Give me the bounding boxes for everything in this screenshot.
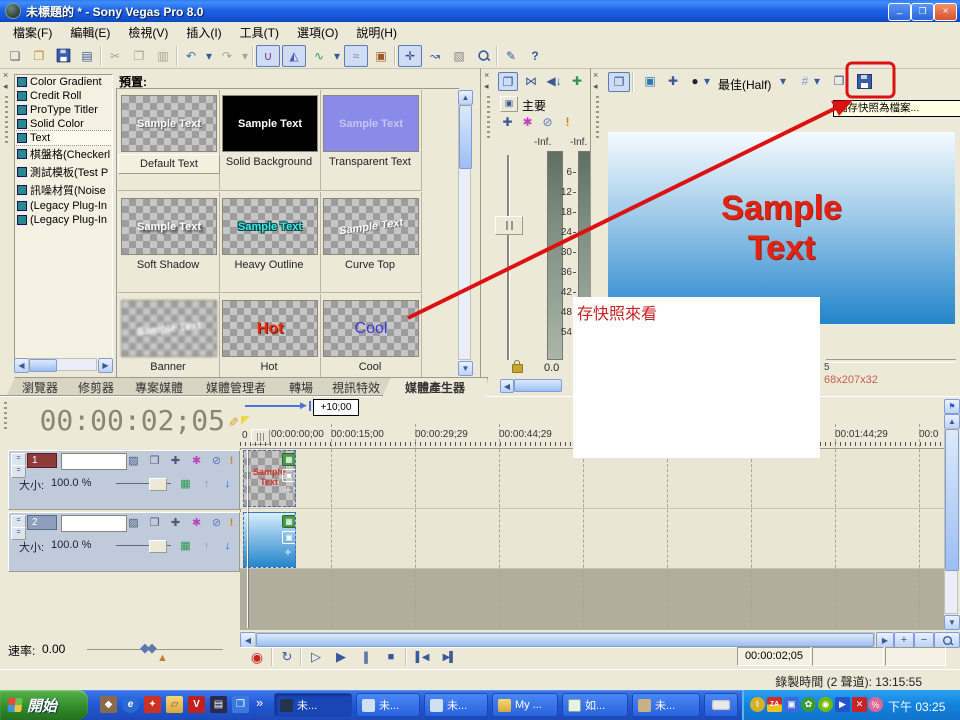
presets-grid: Sample Text Default Text Sample Text Sol… [116, 88, 460, 378]
play-button[interactable]: ▶ [330, 648, 352, 666]
marker-flag-icon[interactable]: ⚑ [944, 399, 960, 414]
preset-transparent-text[interactable]: Sample Text Transparent Text [320, 90, 422, 191]
preview-status-divider [826, 359, 956, 363]
grid-dropdown-icon[interactable]: ▾ [812, 72, 822, 90]
zoom-tool-button[interactable] [934, 632, 960, 648]
meter-scale-24: 24 [560, 227, 576, 238]
zoom-out-icon[interactable]: − [914, 632, 934, 648]
event-fx-icon[interactable]: ✛ [282, 485, 294, 496]
track2-lane[interactable] [240, 512, 944, 569]
generator-list: Color Gradient Credit Roll ProType Title… [14, 74, 113, 360]
pause-button[interactable]: ∥ [355, 648, 377, 666]
snap-toggle-icon[interactable]: ∪ [256, 45, 280, 67]
project-properties-icon[interactable]: ❐ [608, 72, 630, 92]
task-icon [280, 699, 293, 712]
preset-curve-top[interactable]: Sample Text Curve Top [320, 192, 422, 293]
track1-automation-icon[interactable]: ▦ [177, 476, 194, 491]
preset-banner[interactable]: Sample Text Banner [118, 294, 220, 378]
zoom-in-icon[interactable]: + [894, 632, 914, 648]
generator-item[interactable]: Credit Roll [15, 89, 112, 103]
generator-label: Color Gradient [30, 76, 102, 88]
mixer-hscrollbar[interactable] [514, 379, 562, 392]
generator-item[interactable]: 測試模板(Test P [15, 163, 112, 181]
restore-button[interactable]: ❐ [911, 3, 934, 21]
event-fx-icon[interactable]: ✛ [282, 547, 294, 558]
ruler-label-4: 00:01:44;29 [835, 429, 888, 440]
tab-media-manager[interactable]: 媒體管理者 [188, 377, 284, 397]
ruler-zero-label: 0 [242, 430, 248, 441]
preset-solid-background[interactable]: Sample Text Solid Background [219, 90, 321, 191]
presets-scroll-down-icon[interactable]: ▼ [458, 361, 473, 376]
master-gain-value: 0.0 [544, 362, 559, 374]
menu-tools[interactable]: 工具(T) [231, 22, 288, 43]
go-to-end-button[interactable]: ▶▌ [437, 648, 461, 666]
record-button[interactable]: ◉ [246, 648, 268, 666]
timeline-scroll-down-icon[interactable]: ▼ [944, 615, 960, 630]
preset-heavy-outline[interactable]: Sample Text Heavy Outline [219, 192, 321, 293]
generator-bullet-icon [17, 185, 27, 195]
preset-thumbnail: Sample Text [222, 198, 318, 255]
track2-automation-icon[interactable]: ▦ [177, 538, 194, 553]
quick-launch-icon-7[interactable]: ❐ [232, 696, 249, 713]
master-solo-icon[interactable]: ! [559, 114, 576, 130]
ignore-grouping-icon[interactable]: ▣ [370, 46, 392, 66]
mixer-panel-border [480, 68, 481, 398]
generator-label: 訊噪材質(Noise [30, 182, 106, 198]
generated-media-icon[interactable]: ▦ [282, 515, 296, 528]
generator-label: Credit Roll [30, 90, 81, 102]
tray-icon-2[interactable]: ZA [767, 697, 782, 712]
title-bar: 未標題的 * - Sony Vegas Pro 8.0 _ ❐ × [0, 0, 960, 22]
start-label: 開始 [27, 695, 57, 716]
preset-name: Transparent Text [320, 156, 420, 168]
master-fx-icon[interactable]: ✱ [519, 114, 536, 130]
gridline [499, 424, 500, 628]
offset-arrow-line [245, 405, 303, 407]
copy-icon[interactable]: ❐ [128, 46, 150, 66]
master-bus-icon[interactable]: ▣ [500, 96, 518, 112]
copy-snapshot-icon[interactable]: ❐ [830, 72, 848, 90]
video-fx-icon[interactable]: ✚ [664, 72, 682, 90]
genpanel-collapse-icon[interactable]: ◂ [3, 82, 8, 91]
preset-name: Banner [118, 361, 218, 373]
preset-hot[interactable]: Hot Hot [219, 294, 321, 378]
track2-clip[interactable]: ▦ ▣ ✛ [243, 512, 296, 568]
genpanel-close-icon[interactable]: × [3, 71, 8, 80]
transport-separator [300, 648, 302, 666]
window-title: 未標題的 * - Sony Vegas Pro 8.0 [26, 3, 203, 20]
pan-crop-icon[interactable]: ▣ [282, 531, 296, 544]
track1-bypass-motion-blur-icon[interactable]: ▨ [125, 453, 142, 468]
tray-icon-6[interactable]: ▶ [835, 697, 850, 712]
preset-name: Heavy Outline [219, 259, 319, 271]
minimize-button[interactable]: _ [888, 3, 911, 21]
mixer-drag-handle[interactable] [487, 96, 490, 141]
undo-icon[interactable]: ↶ [180, 46, 202, 66]
video-preview-frame: Sample Text [608, 132, 955, 324]
track2-track-motion-icon[interactable]: ❐ [146, 515, 163, 530]
annotation-note-text: 存快照來看 [577, 300, 657, 324]
preset-name: Curve Top [320, 259, 420, 271]
save-snapshot-button[interactable] [854, 72, 874, 90]
taskbar-task-4[interactable]: My ... [492, 693, 558, 717]
redo-dropdown-icon[interactable]: ▾ [240, 46, 250, 66]
generator-label: (Legacy Plug-In [30, 200, 107, 212]
preset-thumbnail: Sample Text [121, 300, 217, 357]
keyboard-icon [712, 700, 730, 710]
quick-launch-icon-5[interactable]: V [188, 696, 205, 713]
ruler-label-2: 00:00:29;29 [415, 429, 468, 440]
edit-pencil-icon[interactable]: ✎ [224, 417, 240, 428]
cut-icon[interactable]: ✂ [104, 46, 126, 66]
overlays-dropdown-icon[interactable]: ▾ [702, 72, 712, 90]
ruler-label-5: 00:0 [919, 429, 938, 440]
track1-header[interactable]: = = 1 ▨ ❐ ✚ ✱ ⊘ ! 大小: 100.0 % ▦ ↑ ↓ [8, 450, 240, 510]
tab-project-media[interactable]: 專案媒體 [118, 377, 200, 397]
paste-icon[interactable]: ▥ [152, 46, 174, 66]
whats-this-icon[interactable]: ? [524, 46, 546, 66]
generator-bullet-icon [17, 133, 27, 143]
taskbar-keyboard-button[interactable] [704, 693, 738, 717]
gridline [835, 424, 836, 628]
transport-separator [405, 648, 407, 666]
generator-item[interactable]: (Legacy Plug-In [15, 199, 112, 213]
mixer-plugin-icon[interactable]: ✚ [568, 72, 586, 89]
quick-launch-icon-3[interactable]: ✦ [144, 696, 161, 713]
preview-status-frame: 5 [824, 362, 830, 373]
menu-edit[interactable]: 編輯(E) [61, 22, 119, 43]
track2-bypass-motion-blur-icon[interactable]: ▨ [125, 515, 142, 530]
preview-collapse-icon[interactable]: ◂ [593, 82, 598, 91]
pan-crop-icon[interactable]: ▣ [282, 469, 296, 482]
track1-composite-mode-icon[interactable]: ✚ [167, 453, 184, 468]
generator-bullet-icon [17, 149, 27, 159]
track2-size-value: 100.0 % [51, 539, 91, 551]
mixer-downmix-icon[interactable]: ⋈ [522, 72, 540, 89]
tray-icon-8[interactable]: % [868, 697, 883, 712]
mixer-dim-output-icon[interactable]: ◀↓ [545, 72, 563, 89]
task-icon [430, 699, 443, 712]
fader-track [507, 155, 510, 360]
quick-launch-icon-1[interactable]: ◆ [100, 696, 117, 713]
generator-item[interactable]: Solid Color [15, 117, 112, 131]
track2-track-fx-icon[interactable]: ✱ [188, 515, 205, 530]
lock-envelopes-icon[interactable]: ≈ [344, 45, 368, 67]
track2-name-input[interactable] [61, 515, 127, 532]
track2-arm-down-icon[interactable]: ↓ [219, 538, 236, 553]
preset-name: Default Text [118, 154, 220, 174]
preset-thumbnail: Cool [323, 300, 419, 357]
meter-scale-30: 30 [560, 247, 576, 258]
normal-edit-tool-icon[interactable]: ✛ [398, 45, 422, 67]
generator-label: (Legacy Plug-In [30, 214, 107, 226]
generator-label: 測試模板(Test P [30, 164, 108, 180]
track2-arm-up-icon[interactable]: ↑ [198, 538, 215, 553]
mixer-collapse-icon[interactable]: ◂ [484, 82, 489, 91]
auto-ripple-icon[interactable]: ◭ [282, 45, 306, 67]
ruler-label-3: 00:00:44;29 [499, 429, 552, 440]
menu-insert[interactable]: 插入(I) [177, 22, 230, 43]
timeline-hscrollbar[interactable] [255, 632, 875, 646]
track2-header[interactable]: = = 2 ▨ ❐ ✚ ✱ ⊘ ! 大小: 100.0 % ▦ ↑ ↓ [8, 512, 240, 572]
timeline-drag-handle[interactable] [4, 402, 7, 432]
stop-button[interactable]: ■ [380, 648, 402, 666]
track1-lane[interactable] [240, 450, 944, 509]
generator-bullet-icon [17, 105, 27, 115]
meter-scale-12: 12 [560, 187, 576, 198]
track2-size-label: 大小: [19, 539, 44, 555]
generator-item[interactable]: (Legacy Plug-In [15, 213, 112, 227]
presets-scroll-up-icon[interactable]: ▲ [458, 90, 473, 105]
app-icon [5, 3, 21, 19]
track1-solo-icon[interactable]: ! [223, 453, 240, 468]
meter1-top-label: -Inf. [534, 137, 551, 148]
transport-field-2[interactable] [812, 647, 884, 666]
preview-toolbar-separator [632, 72, 634, 92]
track2-number-badge[interactable]: 2 [27, 515, 57, 530]
selection-tool-icon[interactable]: ▧ [448, 46, 470, 66]
generator-label: 棋盤格(Checkerl [30, 146, 110, 162]
rate-slider-track [87, 649, 223, 650]
preset-soft-shadow[interactable]: Sample Text Soft Shadow [118, 192, 220, 293]
track1-name-input[interactable] [61, 453, 127, 470]
meter-scale-18: 18 [560, 207, 576, 218]
taskbar-task-1[interactable]: 未... [274, 693, 352, 717]
meter-scale-6: 6 [560, 167, 576, 178]
tray-icon-3[interactable]: ▣ [784, 697, 799, 712]
meter-scale-36: 36 [560, 267, 576, 278]
ruler-label-1: 00:00:15;00 [331, 429, 384, 440]
tab-video-fx[interactable]: 視訊特效 [318, 377, 394, 397]
preset-thumbnail: Hot [222, 300, 318, 357]
offset-label: +10;00 [313, 399, 359, 416]
preset-name: Soft Shadow [118, 259, 218, 271]
genlist-scroll-right-icon[interactable]: ▶ [98, 358, 113, 373]
menu-bar: 檔案(F) 編輯(E) 檢視(V) 插入(I) 工具(T) 選項(O) 說明(H… [0, 22, 960, 44]
go-to-start-button[interactable]: ▌◀ [410, 648, 434, 666]
transport-time-field[interactable]: 00:00:02;05 [737, 647, 811, 666]
taskbar-task-2[interactable]: 未... [356, 693, 420, 717]
new-project-icon[interactable]: ❏ [4, 46, 26, 66]
taskbar-task-5[interactable]: 如... [562, 693, 628, 717]
preset-thumbnail: Sample Text [323, 198, 419, 255]
meter2-top-label: -Inf. [570, 137, 589, 148]
generator-bullet-icon [17, 119, 27, 129]
master-bus-label: 主要 [522, 97, 546, 114]
task-icon [638, 699, 651, 712]
timeline-scroll-right-icon[interactable]: ▶ [876, 632, 894, 648]
task-icon [498, 699, 511, 712]
taskbar-task-6[interactable]: 未... [632, 693, 700, 717]
timeline-scroll-up-icon[interactable]: ▲ [944, 414, 960, 429]
genlist-hscrollbar[interactable] [28, 358, 97, 371]
generator-bullet-icon [17, 215, 27, 225]
presets-vscrollbar[interactable] [458, 104, 471, 360]
gridline [415, 424, 416, 628]
transport-separator [271, 648, 273, 666]
preset-thumbnail: Sample Text [121, 198, 217, 255]
tray-icon-1[interactable]: ⚕ [750, 697, 765, 712]
generator-item[interactable]: ProType Titler [15, 103, 112, 117]
track2-level-slider[interactable] [149, 540, 167, 553]
generator-bullet-icon [17, 91, 27, 101]
timeline-time-display[interactable]: 00:00:02;05 [20, 404, 225, 437]
vegas-window: 未標題的 * - Sony Vegas Pro 8.0 _ ❐ × 檔案(F) … [0, 0, 960, 720]
save-icon[interactable] [52, 46, 74, 66]
quick-launch-overflow-icon[interactable]: » [256, 695, 263, 710]
envelope-tool-icon[interactable]: ↝ [424, 46, 446, 66]
timeline-empty-area[interactable] [240, 569, 944, 630]
generated-media-icon[interactable]: ▦ [282, 453, 296, 466]
track1-arm-down-icon[interactable]: ↓ [219, 476, 236, 491]
mixer-scroll-left-icon[interactable]: ◀ [500, 379, 514, 393]
menu-options[interactable]: 選項(O) [288, 22, 347, 43]
preset-name: Solid Background [219, 156, 319, 168]
track1-number-badge[interactable]: 1 [27, 453, 57, 468]
envelope-dropdown-icon[interactable]: ▾ [332, 46, 342, 66]
transport-field-3[interactable] [885, 647, 946, 666]
track2-solo-icon[interactable]: ! [223, 515, 240, 530]
track1-track-fx-icon[interactable]: ✱ [188, 453, 205, 468]
preset-thumbnail: Sample Text [222, 95, 318, 152]
genlist-scroll-left-icon[interactable]: ◀ [14, 358, 29, 373]
track1-track-motion-icon[interactable]: ❐ [146, 453, 163, 468]
preset-thumbnail: Sample Text [323, 95, 419, 152]
track1-arm-up-icon[interactable]: ↑ [198, 476, 215, 491]
mixer-insert-icon[interactable]: ❐ [498, 72, 518, 91]
task-icon [362, 699, 375, 712]
menu-view[interactable]: 檢視(V) [119, 22, 177, 43]
taskbar-task-3[interactable]: 未... [424, 693, 488, 717]
preview-sample-line1: Sample [721, 188, 842, 228]
loop-playback-button[interactable]: ↻ [276, 648, 298, 666]
rate-label: 速率: [8, 642, 35, 659]
edit-cursor [247, 450, 248, 628]
preset-cool[interactable]: Cool Cool [320, 294, 422, 378]
internet-explorer-icon[interactable]: e [122, 696, 139, 713]
menu-help[interactable]: 說明(H) [347, 22, 406, 43]
record-time-status: 錄製時間 (2 聲道): 13:15:55 [660, 673, 922, 690]
generator-item[interactable]: 棋盤格(Checkerl [15, 145, 112, 163]
main-toolbar: ❏ ❒ ▤ ✂ ❐ ▥ ↶ ▾ ↷ ▾ ∪ ◭ ∿ ▾ ≈ ▣ ✛ ↝ ▧ ✎ … [0, 43, 960, 69]
track1-level-slider[interactable] [149, 478, 167, 491]
tray-icon-7[interactable]: ✕ [852, 697, 867, 712]
preset-default-text[interactable]: Sample Text Default Text [118, 90, 220, 191]
envelope-icon[interactable]: ∿ [308, 46, 330, 66]
ruler-label-0: 00:00:00;00 [271, 429, 324, 440]
preview-quality-label[interactable]: 最佳(Half) [718, 76, 771, 93]
generator-item[interactable]: Color Gradient [15, 75, 112, 89]
master-mute-icon[interactable]: ⊘ [539, 114, 556, 130]
external-monitor-icon[interactable]: ▣ [640, 72, 660, 90]
quality-dropdown-icon[interactable]: ▾ [778, 72, 788, 90]
timeline-scroll-left-icon[interactable]: ◀ [240, 632, 256, 648]
undo-dropdown-icon[interactable]: ▾ [204, 46, 214, 66]
mixer-close-icon[interactable]: × [484, 71, 489, 80]
zoom-tool-icon[interactable] [472, 46, 494, 66]
tray-clock: 下午 03:25 [888, 698, 945, 715]
quick-launch-icon-6[interactable]: ▤ [210, 696, 227, 713]
redo-icon[interactable]: ↷ [216, 46, 238, 66]
preview-close-icon[interactable]: × [593, 71, 598, 80]
gridline [331, 424, 332, 628]
timeline-vscrollbar[interactable] [944, 428, 958, 614]
rate-value: 0.00 [42, 642, 65, 656]
generator-item[interactable]: 訊噪材質(Noise [15, 181, 112, 199]
tray-icon-5[interactable]: ◉ [818, 697, 833, 712]
generator-bullet-icon [17, 167, 27, 177]
generator-bullet-icon [17, 201, 27, 211]
properties-icon[interactable]: ▤ [76, 46, 98, 66]
preview-drag-handle[interactable] [596, 96, 599, 141]
task-icon [568, 699, 581, 712]
tray-icon-4[interactable]: ✿ [801, 697, 816, 712]
rate-slider-handle[interactable]: ◆◆ [140, 640, 154, 656]
open-icon[interactable]: ❒ [28, 46, 50, 66]
preset-name: Hot [219, 361, 319, 373]
generator-label: ProType Titler [30, 104, 98, 116]
preview-status-size: 68x207x32 [824, 374, 878, 386]
pen-tool-icon[interactable]: ✎ [500, 46, 522, 66]
track1-size-value: 100.0 % [51, 477, 91, 489]
genpanel-drag-handle[interactable] [5, 96, 8, 144]
windows-logo-icon [7, 698, 22, 712]
play-from-start-button[interactable]: ▷ [305, 648, 327, 666]
preview-sample-line2: Text [748, 228, 815, 268]
track2-composite-mode-icon[interactable]: ✚ [167, 515, 184, 530]
offset-arrow-tick [309, 401, 311, 411]
master-fader[interactable] [495, 216, 523, 235]
menu-file[interactable]: 檔案(F) [4, 22, 61, 43]
folder-icon[interactable]: ▱ [166, 696, 183, 713]
track1-clip[interactable]: Sample Text ▦ ▣ ✛ [243, 450, 296, 507]
preset-name: Cool [320, 361, 420, 373]
generator-label: Text [30, 132, 50, 144]
track1-size-label: 大小: [19, 477, 44, 493]
rate-marker-icon: ▲ [157, 652, 168, 664]
preset-thumbnail: Sample Text [121, 95, 217, 152]
generator-item-selected[interactable]: Text [15, 131, 112, 145]
close-button[interactable]: × [934, 3, 957, 21]
gridline [919, 424, 920, 628]
master-fx-chain-icon[interactable]: ✚ [499, 114, 516, 130]
tab-media-generators[interactable]: 媒體產生器 [382, 377, 488, 397]
start-button[interactable]: 開始 [0, 690, 88, 720]
generator-bullet-icon [17, 77, 27, 87]
offset-arrow-head-icon: ▶ [300, 400, 307, 411]
generator-label: Solid Color [30, 118, 84, 130]
fader-lock-icon[interactable] [512, 364, 523, 373]
save-snapshot-tooltip: 儲存快照為檔案... [833, 100, 960, 117]
